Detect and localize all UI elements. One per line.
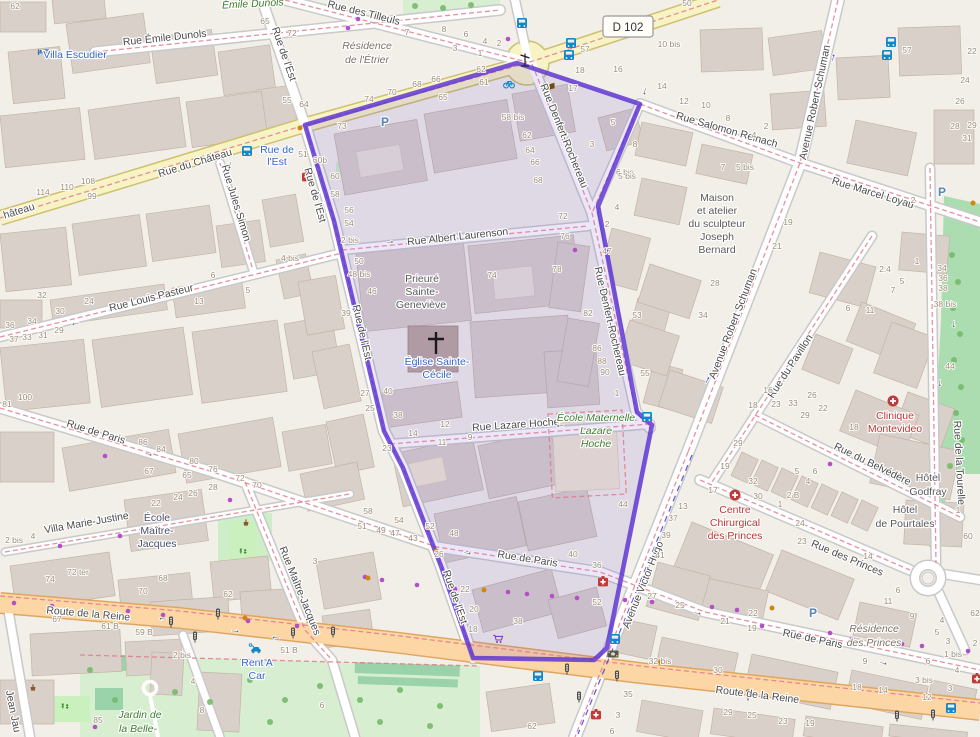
house-number: 24 <box>960 75 970 85</box>
house-number: 21 <box>720 616 730 626</box>
tree-icon <box>357 697 363 703</box>
map-dot <box>575 596 580 601</box>
house-number: 36 <box>592 560 602 570</box>
oneway-arrow: → <box>384 234 396 247</box>
house-number: 11 <box>438 437 447 447</box>
house-number: 23 <box>382 443 392 453</box>
house-number: 74 <box>45 574 55 584</box>
house-number: 68 <box>412 79 422 89</box>
house-number: 65 <box>260 16 270 26</box>
map-dot <box>118 534 123 539</box>
oneway-arrow: → <box>554 421 566 434</box>
house-number: 2 <box>973 638 978 648</box>
house-number: 22 <box>460 584 470 594</box>
house-number: 26 <box>434 549 444 559</box>
poi-label: Résidence <box>849 623 899 635</box>
tree-icon <box>172 689 178 695</box>
house-number: 82 <box>583 308 593 318</box>
house-number: 64 <box>299 99 309 109</box>
house-number: 2 B <box>787 490 800 500</box>
house-number: 34 <box>698 310 708 320</box>
house-number: 13 <box>194 296 204 306</box>
poi-label: Rue de <box>260 144 294 156</box>
house-number: 6 <box>896 585 901 595</box>
house-number: 17 <box>708 485 718 495</box>
house-number: 108 <box>81 176 95 186</box>
map-dot <box>228 498 233 503</box>
tree-icon <box>112 697 118 703</box>
house-number: 88 <box>597 356 607 366</box>
house-number: 2 <box>605 219 610 229</box>
poi-label: Hôtel <box>916 472 941 484</box>
house-number: 8 <box>200 705 205 715</box>
house-number: 3 <box>948 683 953 693</box>
house-number: 16 <box>763 385 773 395</box>
house-number: 8 <box>726 113 731 123</box>
house-number: 31 <box>962 133 972 143</box>
house-number: 43 <box>408 533 418 543</box>
house-number: 3 <box>590 139 595 149</box>
house-number: 81 <box>2 399 12 409</box>
house-number: 59 B <box>135 627 153 637</box>
house-number: 61 B <box>101 621 119 631</box>
house-number: 26 <box>955 96 965 106</box>
house-number: 2 bis <box>173 650 191 660</box>
map-dot <box>482 588 487 593</box>
house-number: 9 <box>910 611 915 621</box>
house-number: 29 <box>800 410 810 420</box>
oneway-arrow: → <box>935 377 948 389</box>
house-number: 40 <box>568 549 578 559</box>
house-number: 5 <box>611 117 616 127</box>
house-number: 1 <box>478 48 483 58</box>
house-number: 51 <box>298 149 308 159</box>
poi-label: Joseph <box>700 231 734 243</box>
house-number: 23 <box>778 716 788 726</box>
house-number: 22 <box>818 403 828 413</box>
map-dot <box>760 624 765 629</box>
house-number: 66 <box>431 74 441 84</box>
tree-icon <box>949 252 955 258</box>
house-number: 25 <box>747 710 757 720</box>
house-number: 18 <box>748 400 758 410</box>
house-number: 52 <box>592 597 602 607</box>
map-dot <box>506 37 511 42</box>
house-number: 32 <box>37 290 47 300</box>
tree-icon <box>437 703 443 709</box>
tree-icon <box>207 699 213 705</box>
house-number: 26 <box>807 390 817 400</box>
house-number: 31 <box>38 330 48 340</box>
poi-label: Lazare <box>580 425 612 437</box>
house-number: 6 <box>846 303 851 313</box>
oneway-arrow: → <box>224 159 238 172</box>
house-number: 18 <box>852 682 862 692</box>
house-number: 8 <box>633 139 638 149</box>
house-number: 38 <box>393 410 403 420</box>
house-number: 30 <box>753 491 763 501</box>
house-number: 6 <box>813 466 818 476</box>
map-dot <box>506 590 511 595</box>
house-number: 18 <box>468 624 478 634</box>
house-number: 6 <box>926 656 931 666</box>
map-dot <box>525 592 530 597</box>
house-number: 90 <box>600 367 610 377</box>
map-dot <box>380 578 385 583</box>
house-number: 44 <box>618 499 628 509</box>
poi-label: École <box>144 511 170 524</box>
house-number: 5 bis <box>736 162 754 172</box>
house-number: 34 <box>937 263 947 273</box>
map-dot <box>12 601 17 606</box>
oneway-arrow: → <box>229 623 241 636</box>
oneway-arrow: → <box>949 318 962 330</box>
house-number: 14 <box>878 685 888 695</box>
house-number: 4 <box>955 665 960 675</box>
map-dot <box>295 624 300 629</box>
house-number: 10 bis <box>658 39 681 49</box>
house-number: 33 <box>22 332 32 342</box>
house-number: 12 <box>440 419 450 429</box>
house-number: 39 <box>341 308 351 318</box>
poi-label: Godfray <box>909 486 947 498</box>
house-number: 70 <box>138 586 148 596</box>
house-number: 9 <box>863 656 868 666</box>
house-number: 29 <box>967 120 977 130</box>
house-number: 5 <box>900 276 905 286</box>
poi-label: Sainte- <box>405 286 439 298</box>
house-number: 4 <box>940 615 945 625</box>
bus-icon <box>642 412 652 422</box>
house-number: 14 <box>657 81 667 91</box>
hospital-icon <box>730 490 741 501</box>
map-dot <box>828 462 833 467</box>
house-number: 49 <box>376 525 386 535</box>
house-number: 1 <box>915 256 920 266</box>
house-number: 48 bis <box>348 269 371 279</box>
tree-icon <box>267 719 273 725</box>
house-number: 62 <box>522 130 532 140</box>
map-dot <box>103 454 108 459</box>
house-number: 4 bis <box>281 253 299 263</box>
house-number: 14 <box>408 428 418 438</box>
house-number: 114 <box>36 187 50 197</box>
road-shield: D 102 <box>603 16 653 37</box>
house-number: 26 <box>188 488 198 498</box>
house-number: 72 ter <box>67 567 89 577</box>
house-number: 51 B <box>280 645 298 655</box>
house-number: 18 <box>575 65 585 75</box>
house-number: 12 <box>922 692 932 702</box>
poi-label: Clinique <box>876 410 914 422</box>
map-dot <box>346 26 351 31</box>
house-number: 62 <box>476 64 486 74</box>
map-dot <box>243 616 248 621</box>
house-number: 28 <box>710 278 720 288</box>
house-number: 4 <box>483 36 488 46</box>
house-number: 86 <box>138 437 148 447</box>
house-number: 76 <box>208 464 218 474</box>
house-number: 72 <box>287 28 297 38</box>
house-number: 38 <box>938 283 948 293</box>
poi-label: Villa Escudier <box>43 49 107 61</box>
house-number: 35 <box>623 689 633 699</box>
house-number: 57 <box>580 44 590 54</box>
house-number: 51 <box>357 521 367 531</box>
tree-icon <box>947 463 953 469</box>
house-number: 19 <box>720 461 730 471</box>
tree-icon <box>397 687 403 693</box>
poi-label: Maison <box>700 192 734 204</box>
house-number: 13 <box>678 501 688 511</box>
poi-label: Car <box>249 670 266 682</box>
house-number: 23 <box>771 399 781 409</box>
tree-icon <box>468 2 474 8</box>
house-number: 28 <box>950 121 960 131</box>
house-number: 55 <box>282 95 292 105</box>
house-number: 3 <box>313 556 318 566</box>
house-number: 30 <box>55 306 65 316</box>
house-number: 16 <box>613 64 623 74</box>
house-number: 67 <box>144 466 154 476</box>
house-number: 1 <box>956 505 961 515</box>
house-number: 4 <box>191 676 196 686</box>
bus-icon <box>946 703 956 713</box>
parking-icon: P <box>381 115 389 129</box>
poi-label: Bernard <box>698 244 736 256</box>
poi-label: Église Sainte- <box>405 355 470 368</box>
money-icon <box>608 651 619 658</box>
house-number: 6 <box>464 29 469 39</box>
bus-icon <box>882 50 892 60</box>
house-number: 2 <box>911 195 916 205</box>
house-number: 5 bis <box>618 171 636 181</box>
house-number: 41 <box>655 550 665 560</box>
oneway-arrow: → <box>639 85 653 98</box>
house-number: 62 <box>223 589 233 599</box>
house-number: 20 <box>469 604 479 614</box>
tree-icon <box>953 410 959 416</box>
house-number: 55 <box>640 368 650 378</box>
house-number: 64 <box>525 145 535 155</box>
poi-label: Maître- <box>140 525 174 537</box>
house-number: 40 <box>383 386 393 396</box>
oneway-arrow: → <box>157 614 169 627</box>
house-number: 78 <box>552 264 562 274</box>
tree-icon <box>427 723 433 729</box>
house-number: 1 <box>615 388 620 398</box>
house-number: 22 <box>151 498 161 508</box>
map-dot <box>415 583 420 588</box>
map-dot <box>966 649 971 654</box>
house-number: 58 <box>363 506 373 516</box>
hospital-icon <box>888 396 899 407</box>
poi-label: de Pourtales <box>876 518 935 530</box>
oneway-arrow: → <box>461 545 474 559</box>
house-number: 27 <box>360 388 370 398</box>
house-number: 32 bis <box>649 656 672 666</box>
house-number: 1 bis <box>944 649 962 659</box>
house-number: 66 <box>530 157 540 167</box>
house-number: 60b <box>313 155 327 165</box>
house-number: 2 bis <box>341 235 359 245</box>
bus-icon <box>517 18 527 28</box>
house-number: 62 <box>10 1 20 11</box>
house-number: 24 <box>84 296 94 306</box>
map-dot <box>828 631 833 636</box>
house-number: 38 <box>513 616 523 626</box>
map-dot <box>623 598 628 603</box>
parking-icon: P <box>809 606 817 620</box>
poi-label: Résidence <box>342 40 392 52</box>
map-dot <box>971 201 976 206</box>
house-number: 80 <box>189 456 199 466</box>
house-number: 72 <box>235 473 245 483</box>
house-number: 3 <box>946 636 951 646</box>
house-number: 24 <box>795 518 805 528</box>
house-number: 5 <box>935 627 940 637</box>
house-number: 46 <box>367 286 377 296</box>
house-number: 7 <box>405 27 410 37</box>
house-number: 44 <box>945 361 955 371</box>
house-number: 58 <box>330 189 340 199</box>
bus-icon <box>242 146 252 156</box>
house-number: 50 <box>354 256 364 266</box>
house-number: 29 <box>54 325 64 335</box>
house-number: 57 <box>902 45 912 55</box>
tree-icon <box>955 279 961 285</box>
house-number: 5 <box>246 285 251 295</box>
poi-label: et atelier <box>697 205 738 217</box>
house-number: 5 <box>795 466 800 476</box>
house-number: 2 <box>497 38 502 48</box>
map-dot <box>550 594 555 599</box>
house-number: 38 bis <box>934 299 957 309</box>
map-dot <box>573 248 578 253</box>
house-number: 48 <box>449 528 459 538</box>
house-number: 37 <box>9 334 19 344</box>
bus-icon <box>566 38 576 48</box>
house-number: 70 <box>387 87 397 97</box>
house-number: 39 <box>661 530 671 540</box>
house-number: 6 <box>320 700 325 710</box>
poi-label: Centre <box>719 504 751 516</box>
poi-label: Hoche <box>581 438 612 450</box>
house-number: 19 <box>747 623 757 633</box>
tree-icon <box>377 719 383 725</box>
house-number: 29 <box>733 438 743 448</box>
map-dot <box>366 576 371 581</box>
house-number: 54 <box>394 515 404 525</box>
house-number: 7 <box>891 285 896 295</box>
poi-label: du sculpteur <box>688 218 746 230</box>
poi-label: de l'Étrier <box>345 53 390 66</box>
house-number: 47 <box>390 528 400 538</box>
house-number: 4 <box>31 531 36 541</box>
house-number: 2:4 <box>879 264 891 274</box>
tree-icon <box>412 3 418 9</box>
map-dot <box>920 644 925 649</box>
poi-label: Hôtel <box>893 504 918 516</box>
tree-icon <box>282 697 288 703</box>
house-number: 17 <box>568 83 578 93</box>
house-number: 76 <box>560 231 570 241</box>
map-dot <box>58 544 63 549</box>
tree-icon <box>317 683 323 689</box>
house-number: 7 <box>721 162 726 172</box>
house-number: 37 <box>668 513 678 523</box>
house-number: 6 <box>211 270 216 280</box>
poi-label: Cécile <box>422 369 451 381</box>
house-number: 68 <box>533 175 543 185</box>
oneway-arrow: → <box>269 632 281 645</box>
house-number: 4 <box>752 130 757 140</box>
house-number: 86 <box>592 343 602 353</box>
house-number: 32 <box>748 476 758 486</box>
house-number: 65 <box>438 92 448 102</box>
map-dot <box>710 605 715 610</box>
house-number: 21 <box>772 241 782 251</box>
tree-icon <box>87 667 93 673</box>
house-number: 110 <box>60 182 74 192</box>
house-number: 84 <box>156 444 166 454</box>
house-number: 74 <box>364 94 374 104</box>
house-number: 56 <box>344 205 354 215</box>
poi-label: Montevideo <box>868 423 922 435</box>
bus-icon <box>610 634 620 644</box>
house-number: 74 <box>487 270 497 280</box>
poi-label: École Maternelle <box>557 411 635 424</box>
house-number: 70 <box>252 480 262 490</box>
house-number: 22 <box>967 46 977 56</box>
house-number: 47 <box>602 246 612 256</box>
house-number: 11 <box>866 305 875 315</box>
house-number: 4 <box>615 202 620 212</box>
house-number: 50 <box>682 0 692 8</box>
house-number: 53 <box>632 310 642 320</box>
house-number: 3 <box>616 710 621 720</box>
house-number: 4 <box>806 476 811 486</box>
house-number: 24 <box>173 492 183 502</box>
house-number: 36 <box>938 273 948 283</box>
house-number: 23 <box>797 536 807 546</box>
poi-label: Chirurgical <box>710 517 760 529</box>
map-dot <box>93 725 98 730</box>
tree-icon <box>957 331 963 337</box>
house-number: 99 <box>87 191 97 201</box>
tree-icon <box>958 384 964 390</box>
parking-icon: P <box>938 185 946 199</box>
house-number: 52 <box>425 521 435 531</box>
poi-label: l'Est <box>267 156 287 168</box>
house-number: 2 bis <box>5 535 23 545</box>
house-number: 27 <box>647 591 657 601</box>
house-number: 62 <box>970 608 980 618</box>
house-number: 11 <box>884 596 893 606</box>
map-dot <box>770 606 775 611</box>
map-canvas[interactable]: D 102 Rue Émile DunolsRue des TilleulsRu… <box>0 0 980 737</box>
house-number: 22 <box>748 608 758 618</box>
tree-icon <box>440 5 446 11</box>
map-dot <box>298 126 303 131</box>
house-number: 12 <box>679 96 689 106</box>
bus-icon <box>886 37 896 47</box>
house-number: 8 <box>442 24 447 34</box>
map-dot <box>735 608 740 613</box>
house-number: 10 <box>701 100 711 110</box>
house-number: 19 <box>805 718 815 728</box>
house-number: 6 <box>610 726 615 736</box>
